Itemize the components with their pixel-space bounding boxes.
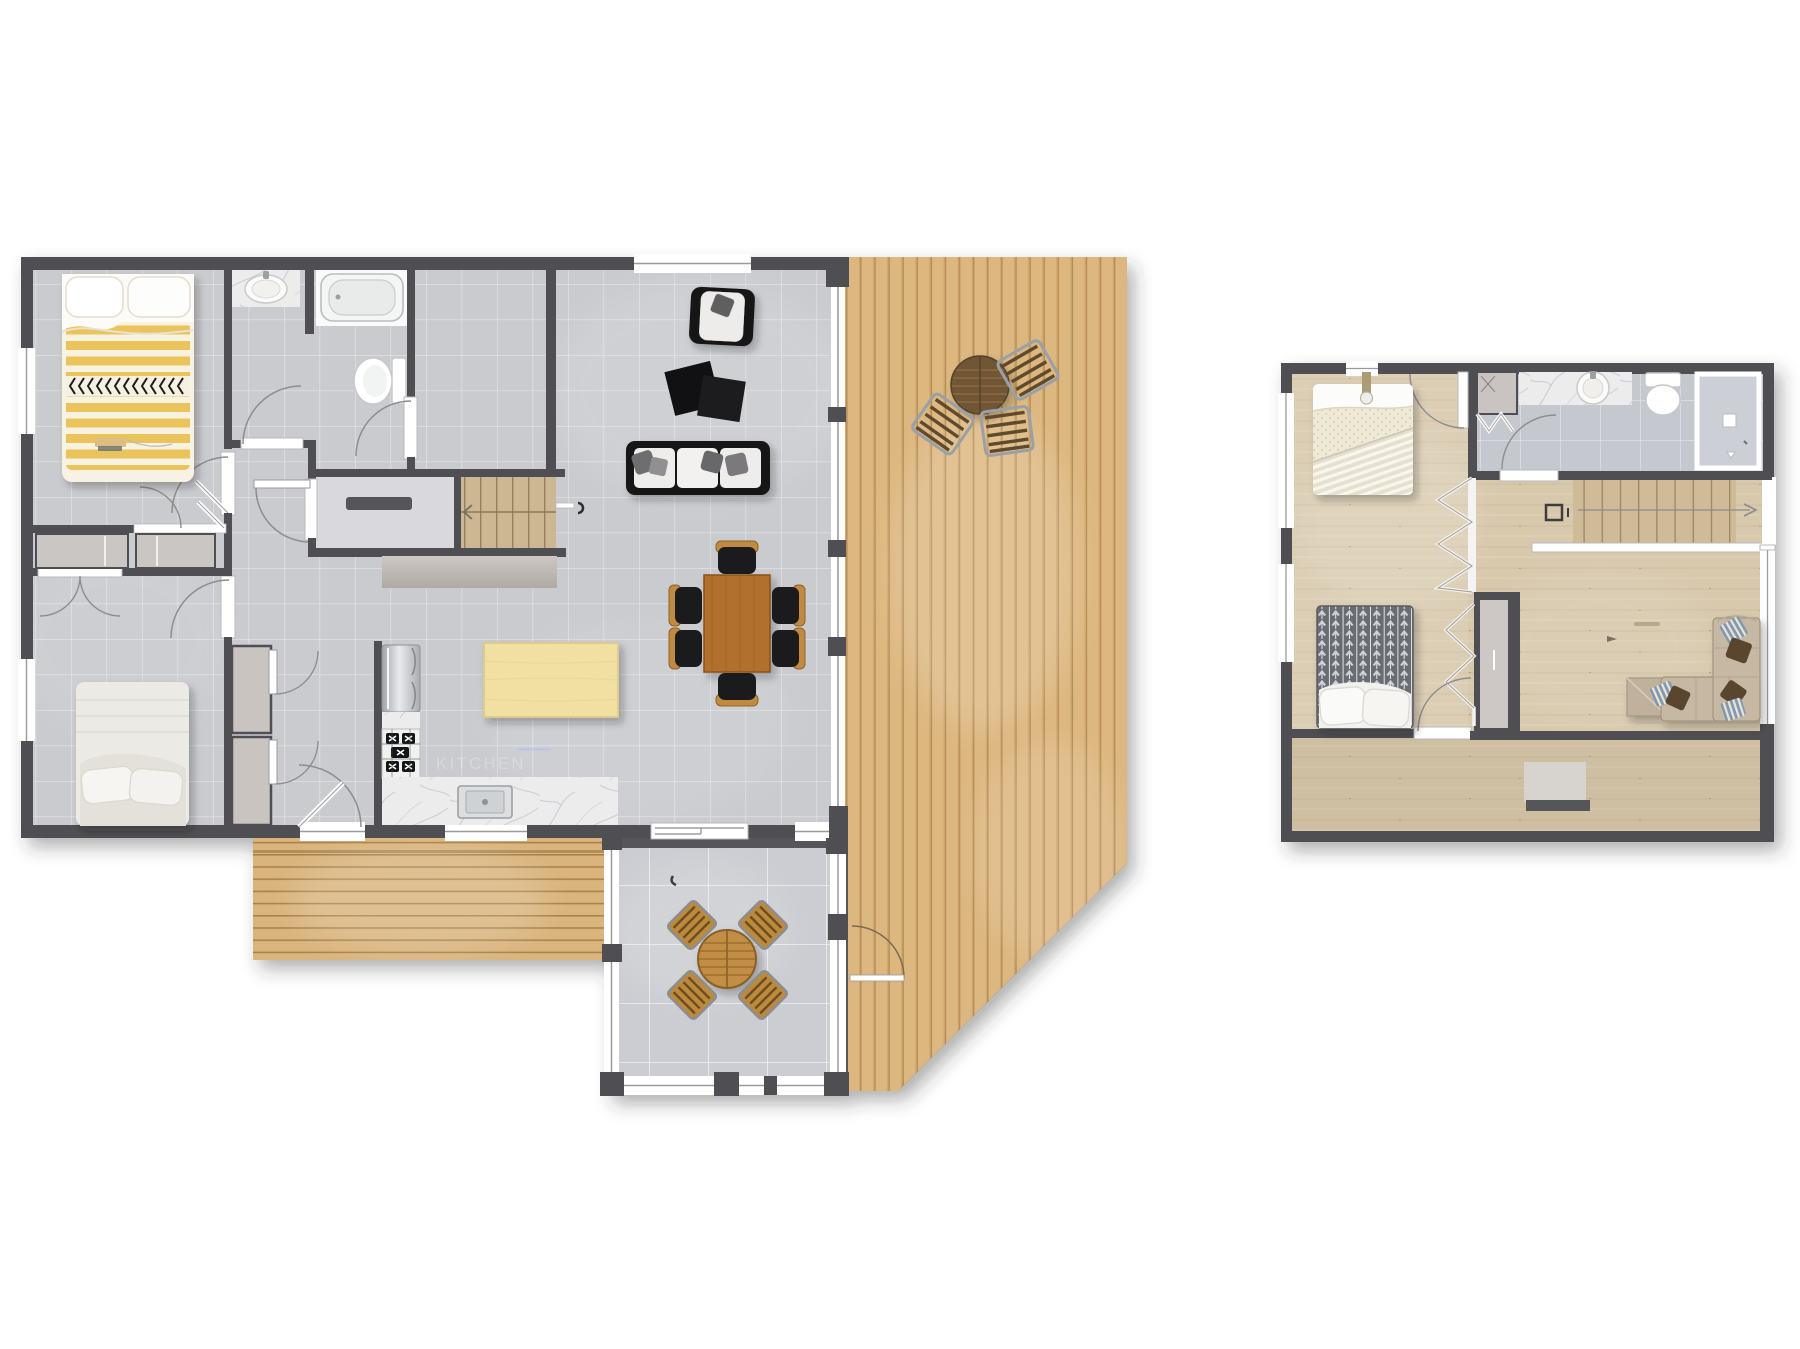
svg-text:KITCHEN: KITCHEN bbox=[436, 755, 526, 773]
